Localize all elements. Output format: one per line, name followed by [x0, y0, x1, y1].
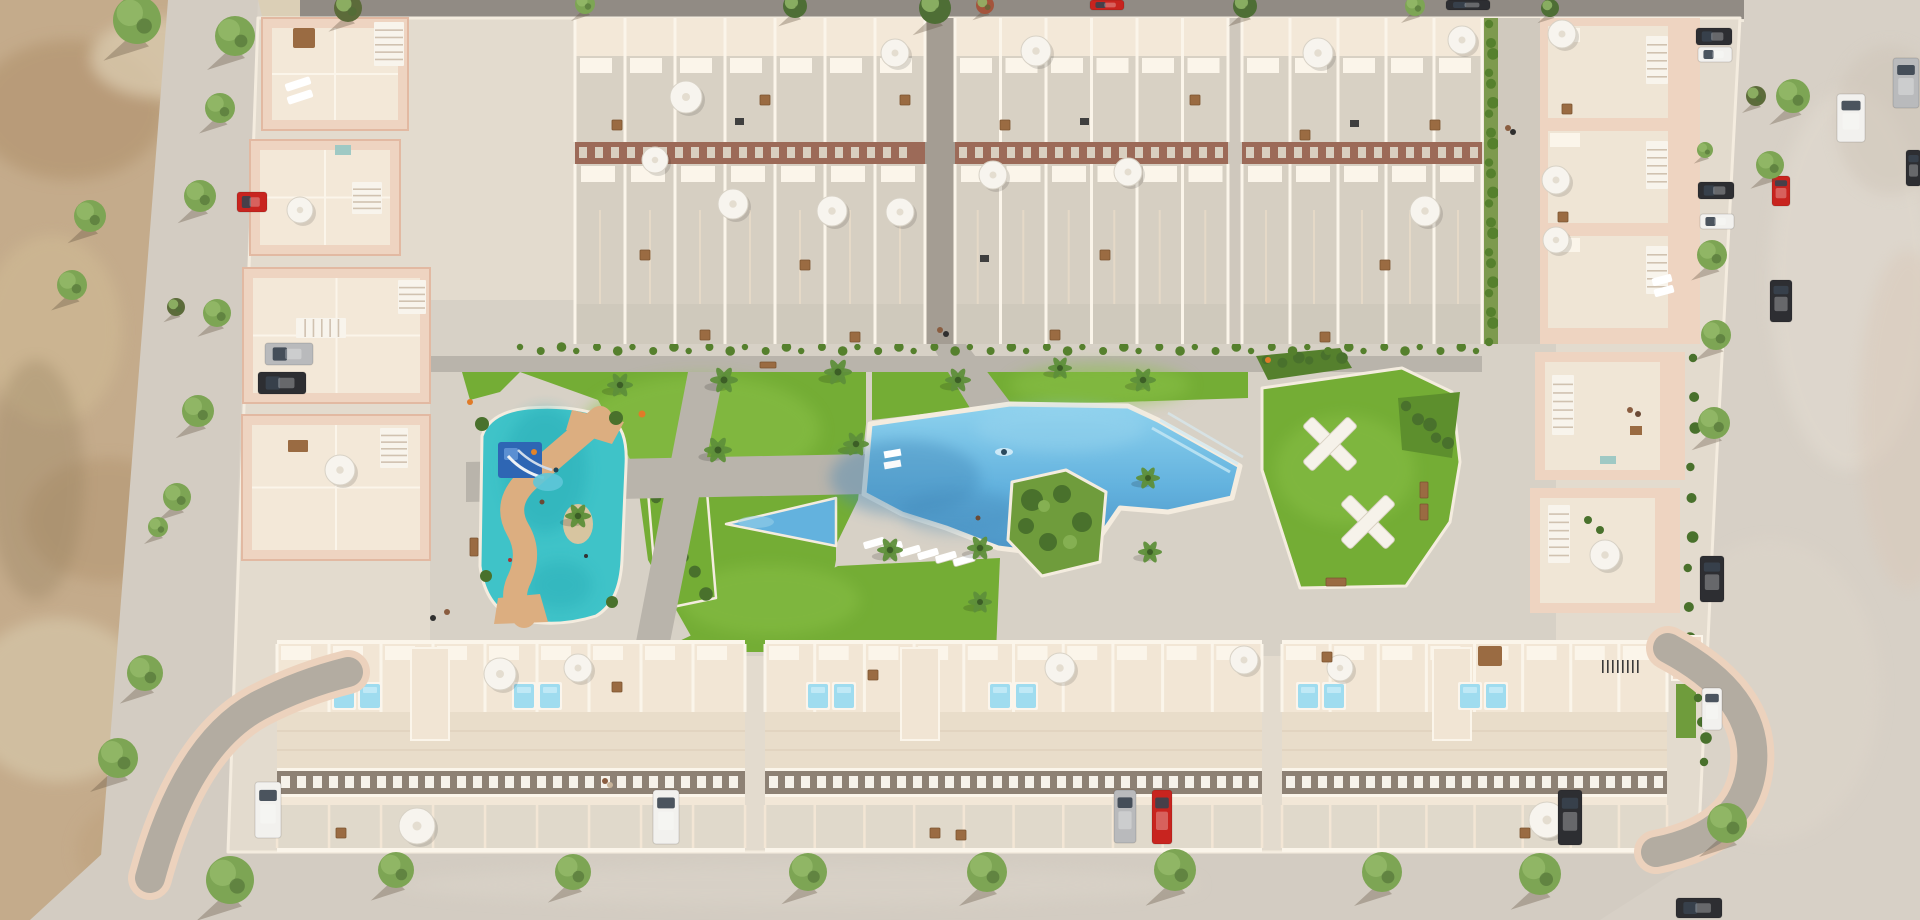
unit-wall — [744, 644, 747, 712]
car-windshield — [1702, 31, 1713, 41]
patio-furniture — [1000, 120, 1010, 130]
stairs — [353, 188, 381, 190]
facade-window — [1390, 147, 1398, 158]
unit-wall — [1211, 805, 1214, 848]
circle — [475, 417, 489, 431]
bush — [1487, 276, 1499, 288]
bush — [699, 587, 713, 601]
bush — [689, 566, 701, 578]
tree — [985, 4, 991, 10]
rect — [1350, 120, 1359, 127]
tree — [72, 284, 82, 294]
bush — [1486, 128, 1496, 138]
car-roof — [285, 349, 301, 360]
rect — [335, 145, 351, 155]
pergola-slab — [1018, 646, 1048, 660]
clerestory-window — [785, 776, 794, 788]
tree — [145, 672, 157, 684]
pergola-slab — [1439, 58, 1471, 73]
stairs — [1549, 538, 1569, 540]
bush — [1485, 20, 1493, 28]
facade — [1282, 797, 1667, 805]
unit-wall — [484, 805, 487, 848]
rect — [980, 255, 989, 262]
blob — [975, 404, 1145, 452]
facade-window — [771, 147, 779, 158]
tree — [1245, 5, 1253, 13]
facade-window — [1310, 147, 1318, 158]
clerestory-window — [1382, 776, 1391, 788]
roof-slope — [277, 712, 745, 770]
car-roof — [1156, 812, 1168, 830]
bush — [1288, 346, 1298, 356]
car-windshield — [1118, 797, 1133, 808]
clerestory-window — [633, 776, 642, 788]
clerestory-window — [1430, 776, 1439, 788]
car-windshield — [1908, 155, 1918, 162]
bike-rack — [1617, 660, 1619, 673]
unit-wall — [924, 164, 927, 344]
half-wall — [977, 210, 979, 304]
clerestory-window — [1462, 776, 1471, 788]
car-windshield — [242, 196, 251, 208]
bush — [1473, 348, 1479, 354]
tree — [235, 35, 248, 48]
unit-wall — [1261, 805, 1264, 848]
facade-window — [723, 147, 731, 158]
unit-wall — [1227, 164, 1230, 344]
bike-rack — [1607, 660, 1609, 673]
facade-window — [1039, 147, 1047, 158]
side-path — [1498, 18, 1540, 344]
palm-tree — [977, 545, 984, 552]
patio-furniture — [1520, 828, 1530, 838]
parasol — [336, 466, 344, 474]
clerestory-window — [393, 776, 402, 788]
half-wall — [699, 210, 701, 304]
car-windshield — [266, 376, 280, 389]
stairs — [1553, 418, 1573, 420]
car-windshield — [1095, 2, 1105, 8]
bush — [1401, 401, 1411, 411]
facade-window — [595, 147, 603, 158]
patio-furniture — [1050, 330, 1060, 340]
bush — [725, 346, 735, 356]
clerestory-window — [361, 776, 370, 788]
wall — [334, 28, 336, 120]
tree — [177, 496, 186, 505]
facade-window — [1007, 147, 1015, 158]
unit-wall — [962, 644, 965, 712]
circle — [1038, 500, 1050, 512]
pergola-slab — [1189, 166, 1223, 182]
clerestory-window — [1526, 776, 1535, 788]
bush — [629, 344, 635, 350]
bush — [854, 344, 860, 350]
bush — [1485, 69, 1493, 77]
clerestory-window — [801, 776, 810, 788]
stairs — [381, 448, 407, 450]
bush — [1689, 354, 1697, 362]
unit-wall — [1281, 805, 1284, 848]
parasol — [1459, 37, 1466, 44]
unit-wall — [1617, 644, 1620, 712]
clerestory-window — [1217, 776, 1226, 788]
parasol — [729, 200, 737, 208]
clerestory-window — [1286, 776, 1295, 788]
facade-window — [991, 147, 999, 158]
clerestory-window — [1510, 776, 1519, 788]
bush — [1304, 344, 1310, 350]
facade-window — [1135, 147, 1143, 158]
clerestory-window — [1606, 776, 1615, 788]
plunge-pool — [1019, 687, 1033, 693]
patio-row — [1242, 304, 1482, 344]
car-roof — [1713, 186, 1725, 194]
clerestory-window — [1334, 776, 1343, 788]
palm-tree — [1147, 549, 1153, 555]
palm-tree — [853, 441, 860, 448]
aerial-site-plan-svg — [0, 0, 1920, 920]
patio-furniture — [900, 95, 910, 105]
parasol — [1553, 177, 1560, 184]
car-windshield — [657, 798, 675, 809]
plunge-pool — [837, 687, 851, 693]
unit-wall — [724, 18, 727, 142]
pergola-slab — [1248, 166, 1282, 182]
plunge-pool — [517, 687, 531, 693]
circle — [1072, 512, 1092, 532]
patio-furniture — [612, 682, 622, 692]
top-townhouse-blocks — [574, 18, 1541, 346]
bush — [1485, 158, 1493, 166]
clerestory-window — [1366, 776, 1375, 788]
pergola-slab — [781, 166, 815, 182]
patio-furniture — [1100, 250, 1110, 260]
clerestory-window — [1073, 776, 1082, 788]
half-wall — [799, 210, 801, 304]
car-roof — [1898, 78, 1914, 95]
pergola-slab — [697, 646, 727, 660]
bush — [1212, 347, 1220, 355]
bush — [517, 344, 523, 350]
bush — [1684, 564, 1692, 572]
stair-tower — [901, 648, 939, 740]
unit-wall — [674, 18, 677, 142]
facade-window — [1454, 147, 1462, 158]
tree — [176, 306, 182, 312]
clerestory-window — [681, 776, 690, 788]
unit-wall — [588, 805, 591, 848]
parasol — [892, 50, 899, 57]
stairs — [381, 461, 407, 463]
dot — [943, 331, 949, 337]
patio-furniture — [1430, 120, 1440, 130]
stairs — [1647, 262, 1667, 264]
bush — [1431, 433, 1441, 443]
person — [602, 778, 608, 784]
patio-furniture — [850, 332, 860, 342]
car-roof — [278, 378, 294, 389]
unit-wall — [924, 18, 927, 142]
trim — [1282, 794, 1667, 797]
bench — [1420, 482, 1428, 498]
parasol — [496, 670, 504, 678]
patio-furniture — [1320, 332, 1330, 342]
facade-window — [975, 147, 983, 158]
bush — [1268, 343, 1276, 351]
unit-wall — [1045, 164, 1048, 344]
area — [494, 594, 548, 624]
clerestory-window — [1478, 776, 1487, 788]
water-slide — [498, 442, 542, 478]
parasol — [413, 822, 422, 831]
clerestory-window — [769, 776, 778, 788]
blob — [533, 473, 563, 491]
stairs — [304, 319, 306, 337]
wall — [324, 150, 326, 245]
pergola-slab — [1391, 58, 1423, 73]
trim — [765, 794, 1262, 797]
bike-rack — [1632, 660, 1634, 673]
unit-wall — [624, 18, 627, 142]
pergola-slab — [830, 58, 862, 73]
half-wall — [599, 210, 601, 304]
palm-tree — [575, 513, 582, 520]
bench — [760, 362, 776, 368]
bush — [1485, 338, 1493, 346]
facade-window — [819, 147, 827, 158]
bush — [573, 348, 579, 354]
trim — [765, 768, 1262, 771]
unit-wall — [574, 18, 577, 142]
facade-window — [883, 147, 891, 158]
parasol — [828, 207, 836, 215]
bush — [1437, 347, 1445, 355]
bush — [874, 347, 882, 355]
car-windshield — [1841, 101, 1860, 111]
bike-rack — [1637, 660, 1639, 673]
car-roof — [1774, 297, 1787, 311]
car-roof — [1695, 903, 1711, 913]
stairs — [1647, 52, 1667, 54]
stairs — [399, 287, 425, 289]
unit-wall — [744, 805, 747, 848]
patio-furniture — [336, 828, 346, 838]
bush — [1135, 348, 1141, 354]
facade-window — [1438, 147, 1446, 158]
tree — [158, 526, 164, 532]
clerestory-window — [569, 776, 578, 788]
tree — [585, 3, 591, 9]
facade-window — [1023, 147, 1031, 158]
unit-wall — [536, 805, 539, 848]
bush — [967, 344, 973, 350]
car-windshield — [1705, 217, 1715, 226]
pergola-slab — [1097, 58, 1129, 73]
clerestory-window — [929, 776, 938, 788]
pergola-slab — [1142, 58, 1174, 73]
car-windshield — [1683, 902, 1697, 914]
pergola-slab — [731, 166, 765, 182]
bush — [705, 343, 713, 351]
bush — [987, 347, 995, 355]
facade-window — [1119, 147, 1127, 158]
facade-window — [1358, 147, 1366, 158]
tree — [118, 757, 131, 770]
stairs — [338, 319, 340, 337]
bush — [1486, 217, 1496, 227]
bush — [818, 343, 826, 351]
street — [1228, 18, 1242, 344]
bush — [1487, 48, 1499, 60]
facade-window — [1103, 147, 1111, 158]
unit-wall — [692, 644, 695, 712]
dot — [540, 500, 545, 505]
unit-wall — [874, 164, 877, 344]
bush — [1486, 79, 1496, 89]
bush — [1412, 413, 1424, 425]
tree — [1727, 822, 1740, 835]
bush — [1485, 289, 1493, 297]
half-wall — [1409, 210, 1411, 304]
bush — [930, 343, 938, 351]
wall — [335, 425, 337, 550]
clerestory-window — [1185, 776, 1194, 788]
stairs — [1647, 68, 1667, 70]
car-windshield — [273, 347, 287, 360]
clerestory-window — [1009, 776, 1018, 788]
stairs — [353, 208, 381, 210]
pergola-slab — [730, 58, 762, 73]
car-windshield — [1453, 2, 1466, 8]
trim — [1282, 768, 1667, 771]
clerestory-window — [1041, 776, 1050, 788]
plunge-pool — [1301, 687, 1315, 693]
clerestory-window — [281, 776, 290, 788]
clerestory-window — [1350, 776, 1359, 788]
pergola-slab — [1286, 646, 1316, 660]
stairs — [1647, 44, 1667, 46]
stairs — [1549, 513, 1569, 515]
pergola-slab — [1343, 58, 1375, 73]
clerestory-window — [1089, 776, 1098, 788]
dot — [1627, 407, 1633, 413]
clerestory-window — [1121, 776, 1130, 788]
facade-window — [867, 147, 875, 158]
dot — [508, 558, 512, 562]
facade-window — [1071, 147, 1079, 158]
unit-wall — [1481, 164, 1484, 344]
pergola-slab — [1575, 646, 1605, 660]
pergola-slab — [1188, 58, 1220, 73]
car-windshield — [1705, 694, 1719, 702]
stairs — [1647, 270, 1667, 272]
parasol — [1543, 816, 1552, 825]
center-lane — [925, 18, 955, 344]
circle — [531, 449, 537, 455]
tree — [217, 312, 226, 321]
clerestory-window — [713, 776, 722, 788]
pergola-slab — [1167, 646, 1197, 660]
bush — [1700, 732, 1712, 744]
parasol — [1314, 49, 1322, 57]
unit-wall — [954, 18, 957, 142]
car-windshield — [1704, 562, 1720, 571]
car-roof — [1776, 188, 1787, 198]
parasol — [1421, 207, 1429, 215]
parasol — [682, 93, 690, 101]
bush — [1380, 343, 1388, 351]
unit-wall — [1012, 805, 1015, 848]
facade-window — [1406, 147, 1414, 158]
pergola-slab — [593, 646, 623, 660]
palm-tree — [1140, 377, 1147, 384]
tree — [1793, 95, 1804, 106]
swimmer — [1001, 449, 1007, 455]
clerestory-window — [945, 776, 954, 788]
unit-wall — [913, 805, 916, 848]
bush — [686, 348, 692, 354]
half-wall — [1457, 210, 1459, 304]
row-wall — [765, 640, 1262, 644]
unit-wall — [674, 164, 677, 344]
tree — [90, 215, 100, 225]
stairs — [375, 37, 403, 39]
stairs — [375, 59, 403, 61]
rect — [735, 118, 744, 125]
blob — [1010, 363, 1190, 407]
pergola-slab — [780, 58, 812, 73]
unit-wall — [1289, 164, 1292, 344]
dot — [584, 554, 588, 558]
clerestory-window — [521, 776, 530, 788]
pergola-slab — [630, 58, 662, 73]
clerestory-window — [1025, 776, 1034, 788]
bush — [1486, 169, 1496, 179]
dot — [1584, 516, 1592, 524]
facade-window — [1342, 147, 1350, 158]
facade-window — [691, 147, 699, 158]
stairs — [399, 300, 425, 302]
bush — [1305, 356, 1313, 364]
rect — [1600, 456, 1616, 464]
unit-wall — [1425, 805, 1428, 848]
stairs — [353, 201, 381, 203]
palm-tree — [977, 599, 983, 605]
bush — [1277, 358, 1287, 368]
dot — [467, 399, 473, 405]
right-houses — [1540, 18, 1700, 344]
half-wall — [849, 210, 851, 304]
stairs — [375, 51, 403, 53]
tree — [1175, 869, 1188, 882]
unit-wall — [774, 18, 777, 142]
half-wall — [1113, 210, 1115, 304]
bush — [1487, 187, 1499, 199]
bike-rack — [1602, 660, 1604, 673]
parasol — [897, 209, 904, 216]
parasol — [1553, 237, 1560, 244]
clerestory-window — [1233, 776, 1242, 788]
car-windshield — [1155, 798, 1169, 809]
dot — [937, 327, 943, 333]
tree — [1415, 5, 1421, 11]
car-roof — [1705, 574, 1719, 590]
patio-furniture — [1562, 104, 1572, 114]
tree — [1712, 254, 1722, 264]
unit-wall — [1337, 164, 1340, 344]
